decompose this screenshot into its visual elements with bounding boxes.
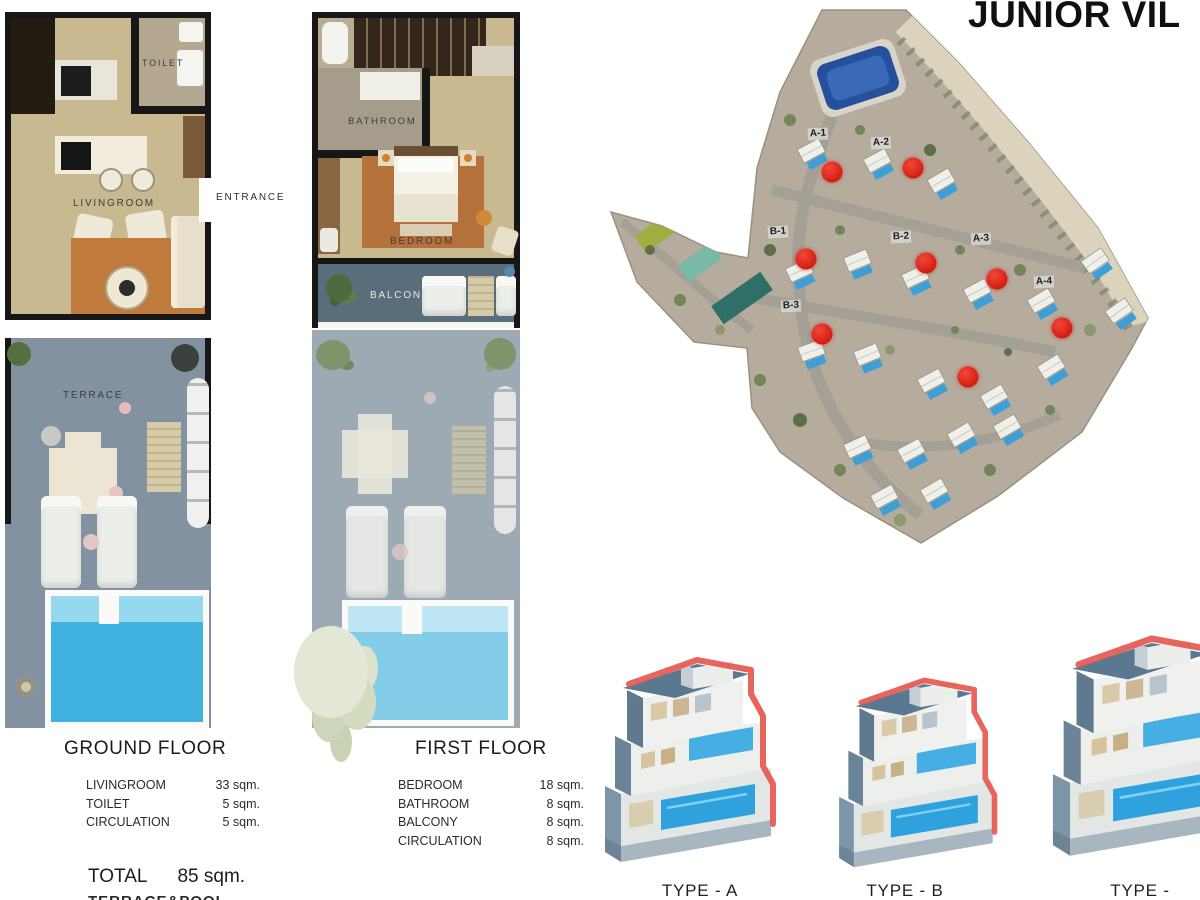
balcony: BALCONY [312, 264, 520, 328]
toilet-label: TOILET [142, 58, 184, 68]
ground-floor-interior: TOILET LIVINGROOM [5, 12, 211, 320]
planter [171, 344, 199, 372]
pool-step [348, 606, 508, 632]
page-title: JUNIOR VIL [968, 0, 1181, 36]
clipped-terrace-line: TERRACE&POOL [88, 893, 226, 900]
villa-type-label-c: TYPE - [1070, 881, 1200, 900]
villa-render-type-a [593, 638, 793, 878]
terrace-label: TERRACE [63, 390, 123, 401]
sun-lounger [41, 496, 81, 588]
plant [326, 274, 352, 302]
bed-headboard [394, 146, 458, 156]
blanket [394, 194, 458, 222]
cooktop [61, 142, 91, 170]
tree [484, 338, 516, 370]
lamp [382, 154, 390, 162]
oven-door [61, 66, 91, 96]
pool-ladder [99, 596, 119, 624]
room-name: CIRCULATION [86, 813, 198, 832]
wall [131, 106, 205, 114]
clipped-terrace-label: TERRACE&POOL [88, 893, 226, 900]
first-floor-plan: BATHROOM BEDROOM BALCONY [312, 12, 520, 728]
bathroom-label: BATHROOM [348, 116, 417, 127]
room-row: TOILET 5 sqm. [86, 795, 260, 814]
room-area: 8 sqm. [520, 813, 584, 832]
villa-type-label-a: TYPE - A [630, 881, 770, 900]
first-floor-room-list: BEDROOM 18 sqm. BATHROOM 8 sqm. BALCONY … [398, 776, 584, 850]
ground-floor-room-list: LIVINGROOM 33 sqm. TOILET 5 sqm. CIRCULA… [86, 776, 260, 832]
entrance-opening [199, 178, 211, 222]
first-floor-heading: FIRST FLOOR [415, 738, 547, 760]
stool [476, 210, 492, 226]
landing [472, 46, 514, 76]
total-row: TOTAL 85 sqm. [88, 866, 245, 888]
deck [452, 426, 486, 494]
room-row: LIVINGROOM 33 sqm. [86, 776, 260, 795]
room-row: BATHROOM 8 sqm. [398, 795, 584, 814]
room-name: BEDROOM [398, 776, 520, 795]
room-name: TOILET [86, 795, 198, 814]
bedroom-label: BEDROOM [390, 236, 454, 247]
first-floor-terrace-view [312, 330, 520, 728]
stool [99, 168, 123, 192]
ground-floor-heading: GROUND FLOOR [64, 738, 226, 760]
room-area: 33 sqm. [198, 776, 260, 795]
wall [5, 338, 11, 524]
pillows [398, 158, 454, 172]
sofa [171, 216, 205, 308]
sun-lounger [346, 506, 388, 598]
balcony-lounger [422, 276, 466, 316]
bench [494, 386, 516, 534]
room-area: 18 sqm. [520, 776, 584, 795]
chair [41, 426, 61, 446]
side-table [83, 534, 99, 550]
deck [147, 422, 181, 492]
room-name: BALCONY [398, 813, 520, 832]
room-row: BEDROOM 18 sqm. [398, 776, 584, 795]
bench [187, 378, 209, 528]
wardrobe [11, 18, 55, 114]
vanity [360, 72, 420, 100]
pale-tree [294, 626, 368, 718]
pool-ladder [402, 606, 422, 634]
brochure-page: TOILET LIVINGROOM TERRACE [0, 0, 1200, 900]
outdoor-shower [17, 678, 35, 696]
wall [422, 68, 430, 158]
chair [320, 228, 338, 252]
stool [131, 168, 155, 192]
site-map [600, 0, 1155, 555]
entrance-label: ENTRANCE [216, 192, 285, 203]
ground-floor-terrace: TERRACE [5, 338, 211, 728]
total-value: 85 sqm. [177, 866, 245, 888]
balcony-deck [468, 276, 494, 316]
livingroom-label: LIVINGROOM [73, 198, 155, 209]
room-name: LIVINGROOM [86, 776, 198, 795]
balcony-lounger [496, 276, 516, 316]
room-row: BALCONY 8 sqm. [398, 813, 584, 832]
swimming-pool [342, 600, 514, 726]
chair [491, 225, 520, 257]
villa-type-label-b: TYPE - B [835, 881, 975, 900]
total-label: TOTAL [88, 866, 147, 888]
room-name: BATHROOM [398, 795, 520, 814]
room-row: CIRCULATION 5 sqm. [86, 813, 260, 832]
villa-render-type-b [828, 660, 1013, 882]
sun-lounger [404, 506, 446, 598]
room-name: CIRCULATION [398, 832, 520, 851]
pot [504, 266, 515, 277]
swimming-pool [45, 590, 209, 728]
wall [131, 18, 139, 106]
bathtub [322, 22, 348, 64]
ground-floor-plan: TOILET LIVINGROOM TERRACE [5, 12, 211, 728]
sink [179, 22, 203, 42]
pool-step [51, 596, 203, 622]
washer [177, 50, 203, 86]
cabinet [183, 116, 205, 178]
room-area: 5 sqm. [198, 813, 260, 832]
pot [424, 392, 436, 404]
pot [119, 402, 131, 414]
room-area: 5 sqm. [198, 795, 260, 814]
tree [316, 340, 350, 370]
first-floor-interior: BATHROOM BEDROOM [312, 12, 520, 264]
sun-lounger [97, 496, 137, 588]
room-area: 8 sqm. [520, 832, 584, 851]
planter [7, 342, 31, 366]
villa-render-type-c [1040, 615, 1200, 873]
railing [318, 322, 514, 328]
dining-table [358, 414, 392, 494]
side-table [392, 544, 408, 560]
lamp [464, 154, 472, 162]
coffee-table-center [119, 280, 135, 296]
bed-bench [400, 224, 452, 236]
room-area: 8 sqm. [520, 795, 584, 814]
room-row: CIRCULATION 8 sqm. [398, 832, 584, 851]
